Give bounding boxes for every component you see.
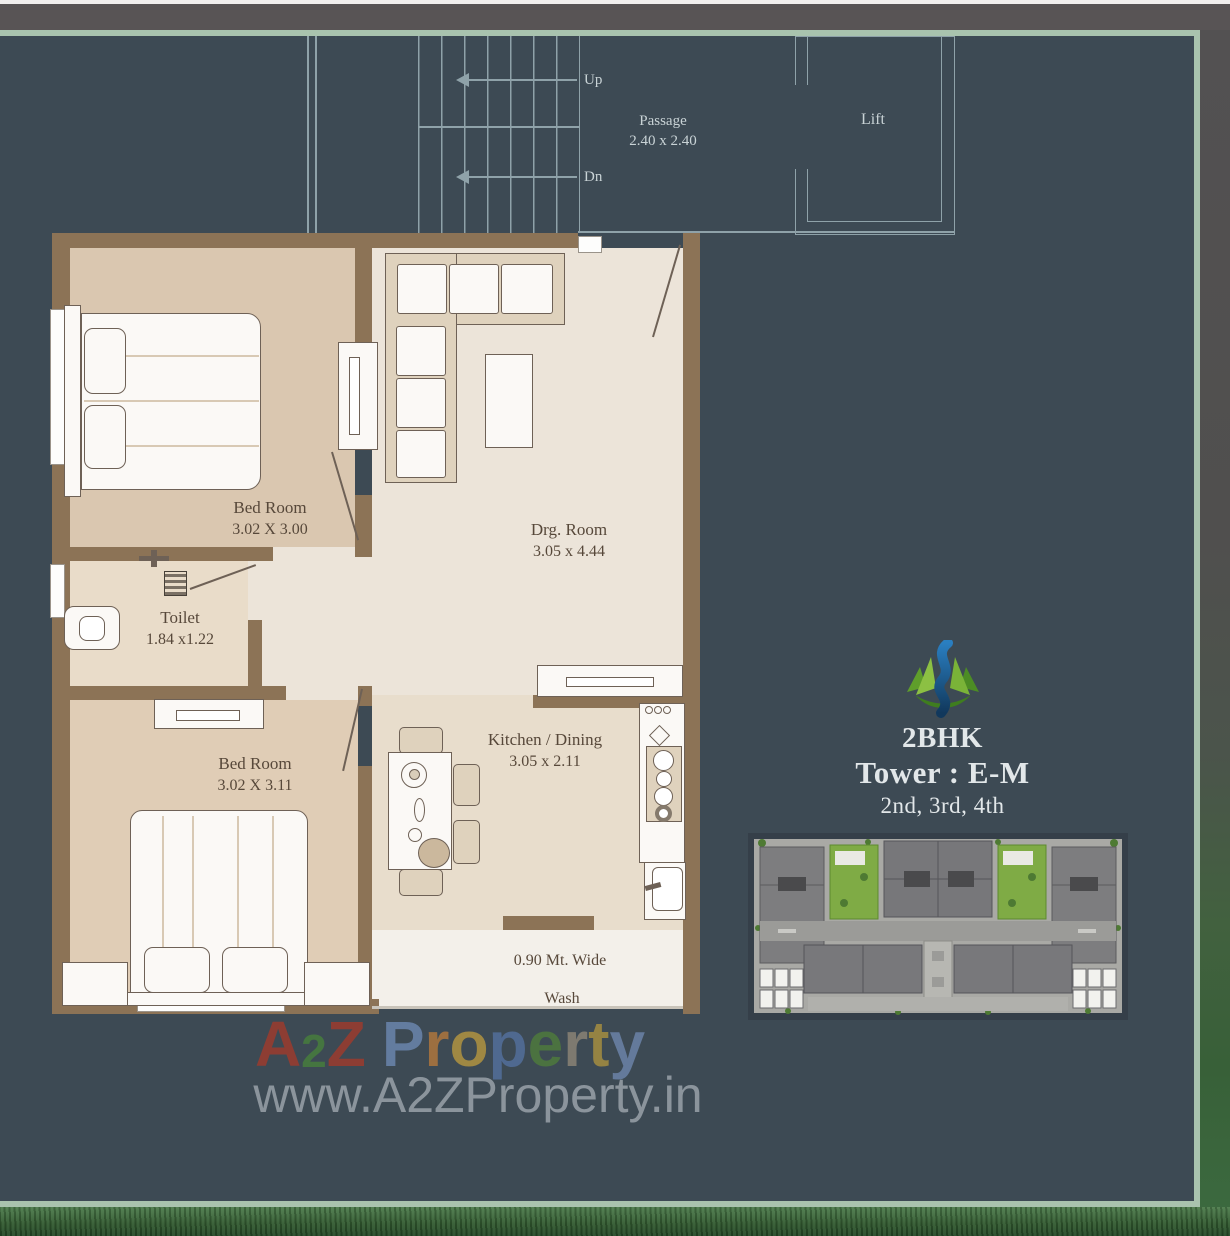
room-name: Wash xyxy=(462,988,662,1009)
bed1-pillow xyxy=(84,405,126,469)
passage-dim: 2.40 x 2.40 xyxy=(583,132,743,152)
dn-arrow-shaft xyxy=(469,176,577,178)
bed2-side-table xyxy=(62,962,128,1006)
room-name: Bed Room xyxy=(175,753,335,775)
bedroom1-label: Bed Room 3.02 X 3.00 xyxy=(190,497,350,541)
unit-info-block: 2BHK Tower : E-M 2nd, 3rd, 4th xyxy=(845,640,1040,819)
toilet-bottom-wall xyxy=(52,686,286,700)
tower-label: Tower : E-M xyxy=(845,755,1040,791)
table-bowl-icon xyxy=(408,828,422,842)
main-door-leaf xyxy=(578,236,602,253)
sofa-cushion xyxy=(396,326,446,376)
bedroom2-label: Bed Room 3.02 X 3.11 xyxy=(175,753,335,797)
table-decor-icon xyxy=(414,798,425,822)
burner-icon xyxy=(653,750,674,771)
photo-backdrop-right xyxy=(1200,30,1230,1236)
up-arrow-head-icon xyxy=(456,73,469,87)
sofa-cushion xyxy=(501,264,553,314)
floors-label: 2nd, 3rd, 4th xyxy=(845,793,1040,819)
kitchen-sink xyxy=(652,867,683,911)
bed2-pillow xyxy=(222,947,288,993)
dining-chair xyxy=(453,820,480,864)
shower-drain-icon xyxy=(164,571,187,596)
bedroom1-right-wall xyxy=(355,248,372,345)
wash-width-note: 0.90 Mt. Wide xyxy=(460,950,660,971)
bed1-sheet-line xyxy=(84,400,259,402)
stair-wall-line xyxy=(307,36,309,233)
top-white-line xyxy=(0,0,1230,4)
room-dim: 1.84 x1.22 xyxy=(110,629,250,650)
up-label: Up xyxy=(584,71,624,91)
bed2-footboard xyxy=(125,992,313,1006)
drawing-room-label: Drg. Room 3.05 x 4.44 xyxy=(489,519,649,563)
lift-door-gap xyxy=(790,85,812,169)
bed1-pillow xyxy=(84,328,126,394)
table-cup-icon xyxy=(409,769,420,780)
room-name: Toilet xyxy=(110,607,250,629)
photo-backdrop-top xyxy=(0,0,1230,30)
outer-wall-top xyxy=(52,233,578,248)
kitchen-label: Kitchen / Dining 3.05 x 2.11 xyxy=(455,729,635,773)
lift-label: Lift xyxy=(823,110,923,131)
room-name: Kitchen / Dining xyxy=(455,729,635,751)
corridor-floor xyxy=(248,547,372,700)
wash-label: Wash xyxy=(462,988,662,1009)
stair-landing-divider xyxy=(418,126,579,128)
stove-knob-icon xyxy=(654,706,662,714)
toilet-wc-seat xyxy=(79,616,105,641)
sofa-cushion xyxy=(396,430,446,478)
bed1-headboard xyxy=(64,305,81,497)
floorplan-screenshot: Up Dn Passage 2.40 x 2.40 Lift xyxy=(0,0,1230,1236)
dining-chair xyxy=(399,869,443,896)
stove-knob-icon xyxy=(645,706,653,714)
stair-treads xyxy=(418,36,580,233)
room-dim: 3.02 X 3.11 xyxy=(175,775,335,796)
outer-wall-top-right-stub xyxy=(683,233,700,248)
watermark-url: www.A2ZProperty.in xyxy=(228,1066,728,1124)
grass-photo-strip xyxy=(0,1207,1230,1236)
toilet-window xyxy=(50,564,65,618)
passage-label: Passage 2.40 x 2.40 xyxy=(583,112,743,151)
dresser-drawer xyxy=(176,710,240,721)
room-name: Bed Room xyxy=(190,497,350,519)
kitchen-window-slot xyxy=(566,677,654,687)
site-plan-thumbnail xyxy=(748,833,1128,1020)
up-arrow-shaft xyxy=(469,79,577,81)
kitchen-wash-wall xyxy=(503,916,594,930)
burner-icon xyxy=(656,771,672,787)
dining-chair xyxy=(399,727,443,754)
coffee-table xyxy=(485,354,533,448)
room-dim: 3.05 x 4.44 xyxy=(489,541,649,562)
burner-icon xyxy=(654,787,673,806)
dn-label: Dn xyxy=(584,168,624,188)
wash-width-label: 0.90 Mt. Wide xyxy=(460,950,660,971)
table-pot-icon xyxy=(418,838,450,868)
room-name: Drg. Room xyxy=(489,519,649,541)
unit-type-label: 2BHK xyxy=(845,722,1040,755)
bedroom1-window xyxy=(50,309,65,465)
basin-tap-bar-icon xyxy=(139,556,169,561)
sofa-cushion xyxy=(397,264,447,314)
sofa-cushion xyxy=(396,378,446,428)
toilet-right-wall xyxy=(248,620,262,686)
toilet-label: Toilet 1.84 x1.22 xyxy=(110,607,250,651)
wardrobe-door-panel xyxy=(349,357,360,435)
passage-name: Passage xyxy=(583,112,743,132)
dn-arrow-head-icon xyxy=(456,170,469,184)
sofa-cushion xyxy=(449,264,499,314)
stove-knob-icon xyxy=(663,706,671,714)
burner-icon xyxy=(655,805,672,822)
bed2-pillow xyxy=(144,947,210,993)
room-dim: 3.05 x 2.11 xyxy=(455,751,635,772)
bed2-side-table xyxy=(304,962,370,1006)
room-dim: 3.02 X 3.00 xyxy=(190,519,350,540)
a2z-leaf-flame-logo-icon xyxy=(903,640,983,718)
stair-wall-line xyxy=(315,36,317,233)
bedroom1-right-wall-stub xyxy=(355,495,372,557)
